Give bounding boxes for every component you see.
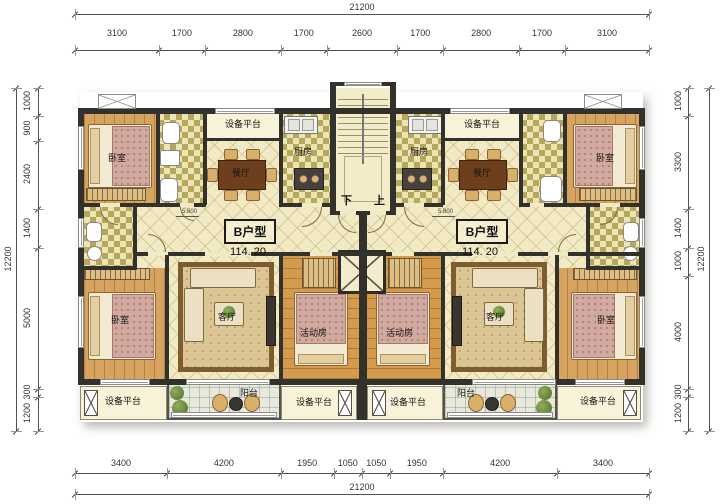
- dim-label: 1050: [354, 458, 398, 468]
- dim-extension: [683, 431, 694, 432]
- dim-extension: [33, 209, 44, 210]
- dim-extension: [443, 468, 444, 479]
- dim-extension: [683, 116, 694, 117]
- dim-extension: [11, 88, 22, 89]
- dimension-annotations: 2120031001700280017002600170028001700310…: [0, 0, 720, 504]
- dim-label: 1000: [673, 79, 683, 123]
- dim-label: 1700: [160, 28, 204, 38]
- dim-label: 1700: [398, 28, 442, 38]
- dim-extension: [683, 248, 694, 249]
- dim-label: 5000: [22, 296, 32, 340]
- dim-label: 2800: [459, 28, 503, 38]
- dim-extension: [281, 468, 282, 479]
- dim-extension: [683, 209, 694, 210]
- dim-line: [75, 494, 649, 495]
- dim-extension: [649, 468, 650, 479]
- dim-extension: [334, 468, 335, 479]
- dim-label: 2800: [221, 28, 265, 38]
- dim-extension: [683, 88, 694, 89]
- dim-label: 1700: [282, 28, 326, 38]
- dim-label: 21200: [340, 482, 384, 492]
- dim-extension: [704, 431, 715, 432]
- dim-label: 4000: [673, 310, 683, 354]
- dim-label: 21200: [340, 2, 384, 12]
- dim-extension: [704, 88, 715, 89]
- dim-extension: [281, 45, 282, 56]
- dim-label: 1400: [22, 206, 32, 250]
- dim-extension: [397, 45, 398, 56]
- dim-extension: [75, 468, 76, 479]
- dim-extension: [75, 45, 76, 56]
- dim-extension: [75, 489, 76, 500]
- dim-label: 3300: [673, 140, 683, 184]
- dim-label: 3400: [581, 458, 625, 468]
- dim-label: 12200: [3, 237, 13, 281]
- dim-extension: [167, 468, 168, 479]
- dim-label: 1950: [285, 458, 329, 468]
- dim-extension: [565, 45, 566, 56]
- dim-extension: [33, 116, 44, 117]
- dim-line: [688, 88, 689, 431]
- dim-extension: [33, 389, 44, 390]
- dim-extension: [33, 88, 44, 89]
- dim-extension: [75, 9, 76, 20]
- dim-label: 3400: [99, 458, 143, 468]
- dim-label: 1000: [673, 239, 683, 283]
- dim-line: [75, 14, 649, 15]
- dim-extension: [443, 45, 444, 56]
- dim-label: 1950: [395, 458, 439, 468]
- dim-extension: [683, 397, 694, 398]
- dim-label: 1200: [22, 391, 32, 435]
- dim-extension: [327, 45, 328, 56]
- dim-extension: [11, 431, 22, 432]
- dim-label: 1700: [520, 28, 564, 38]
- dim-label: 3100: [95, 28, 139, 38]
- dim-extension: [557, 468, 558, 479]
- dim-label: 12200: [696, 237, 706, 281]
- dim-extension: [362, 468, 363, 479]
- dim-label: 3100: [585, 28, 629, 38]
- dim-extension: [205, 45, 206, 56]
- dim-extension: [159, 45, 160, 56]
- dim-extension: [33, 141, 44, 142]
- dim-extension: [33, 397, 44, 398]
- dim-label: 4200: [478, 458, 522, 468]
- dim-extension: [683, 276, 694, 277]
- dim-label: 4200: [202, 458, 246, 468]
- dim-extension: [649, 489, 650, 500]
- dim-extension: [649, 45, 650, 56]
- dim-label: 2400: [22, 152, 32, 196]
- dim-label: 2600: [340, 28, 384, 38]
- dim-label: 900: [22, 106, 32, 150]
- dim-extension: [683, 389, 694, 390]
- dim-line: [709, 88, 710, 431]
- dim-label: 1200: [673, 391, 683, 435]
- dim-extension: [33, 431, 44, 432]
- dim-extension: [519, 45, 520, 56]
- dim-extension: [649, 9, 650, 20]
- dim-line: [16, 88, 17, 431]
- dim-extension: [390, 468, 391, 479]
- dim-extension: [33, 248, 44, 249]
- floorplan-canvas: 卧室 卧室 餐厅 餐厅 厨房 厨房 设备平台 设备平台 卧室 卧室 客厅 客厅 …: [0, 0, 720, 504]
